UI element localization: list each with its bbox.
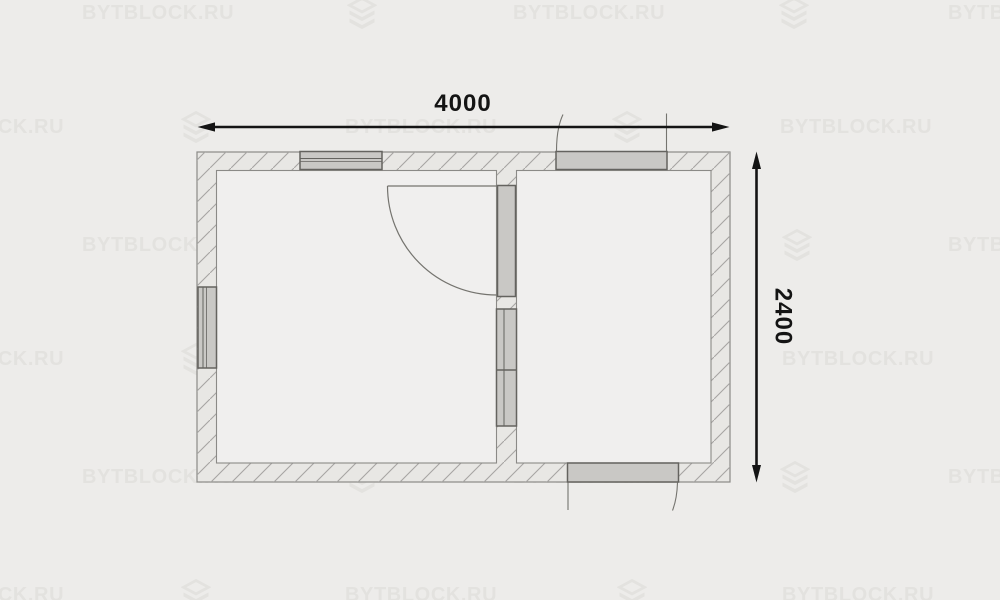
window-top [300,152,382,170]
window-left [198,287,217,368]
room-left [217,171,497,464]
arrowhead-right-icon [712,122,730,131]
floor-plan-svg: 4000 2400 [0,0,1000,600]
arrowhead-left-icon [198,122,216,131]
dimension-height-label: 2400 [770,288,797,345]
arrowhead-up-icon [752,152,761,170]
room-right [517,171,712,464]
dimension-horizontal: 4000 [198,90,730,132]
arrowhead-down-icon [752,465,761,483]
window-partition [497,309,517,426]
door-bottom [568,463,679,511]
floor-plan-page: BYTBLOCK.RUBYTBLOCK.RUBYTBLOCK.RU BYTBLO… [0,0,1000,600]
door-top [556,114,667,170]
dimension-vertical: 2400 [752,152,797,483]
dimension-width-label: 4000 [434,90,491,117]
